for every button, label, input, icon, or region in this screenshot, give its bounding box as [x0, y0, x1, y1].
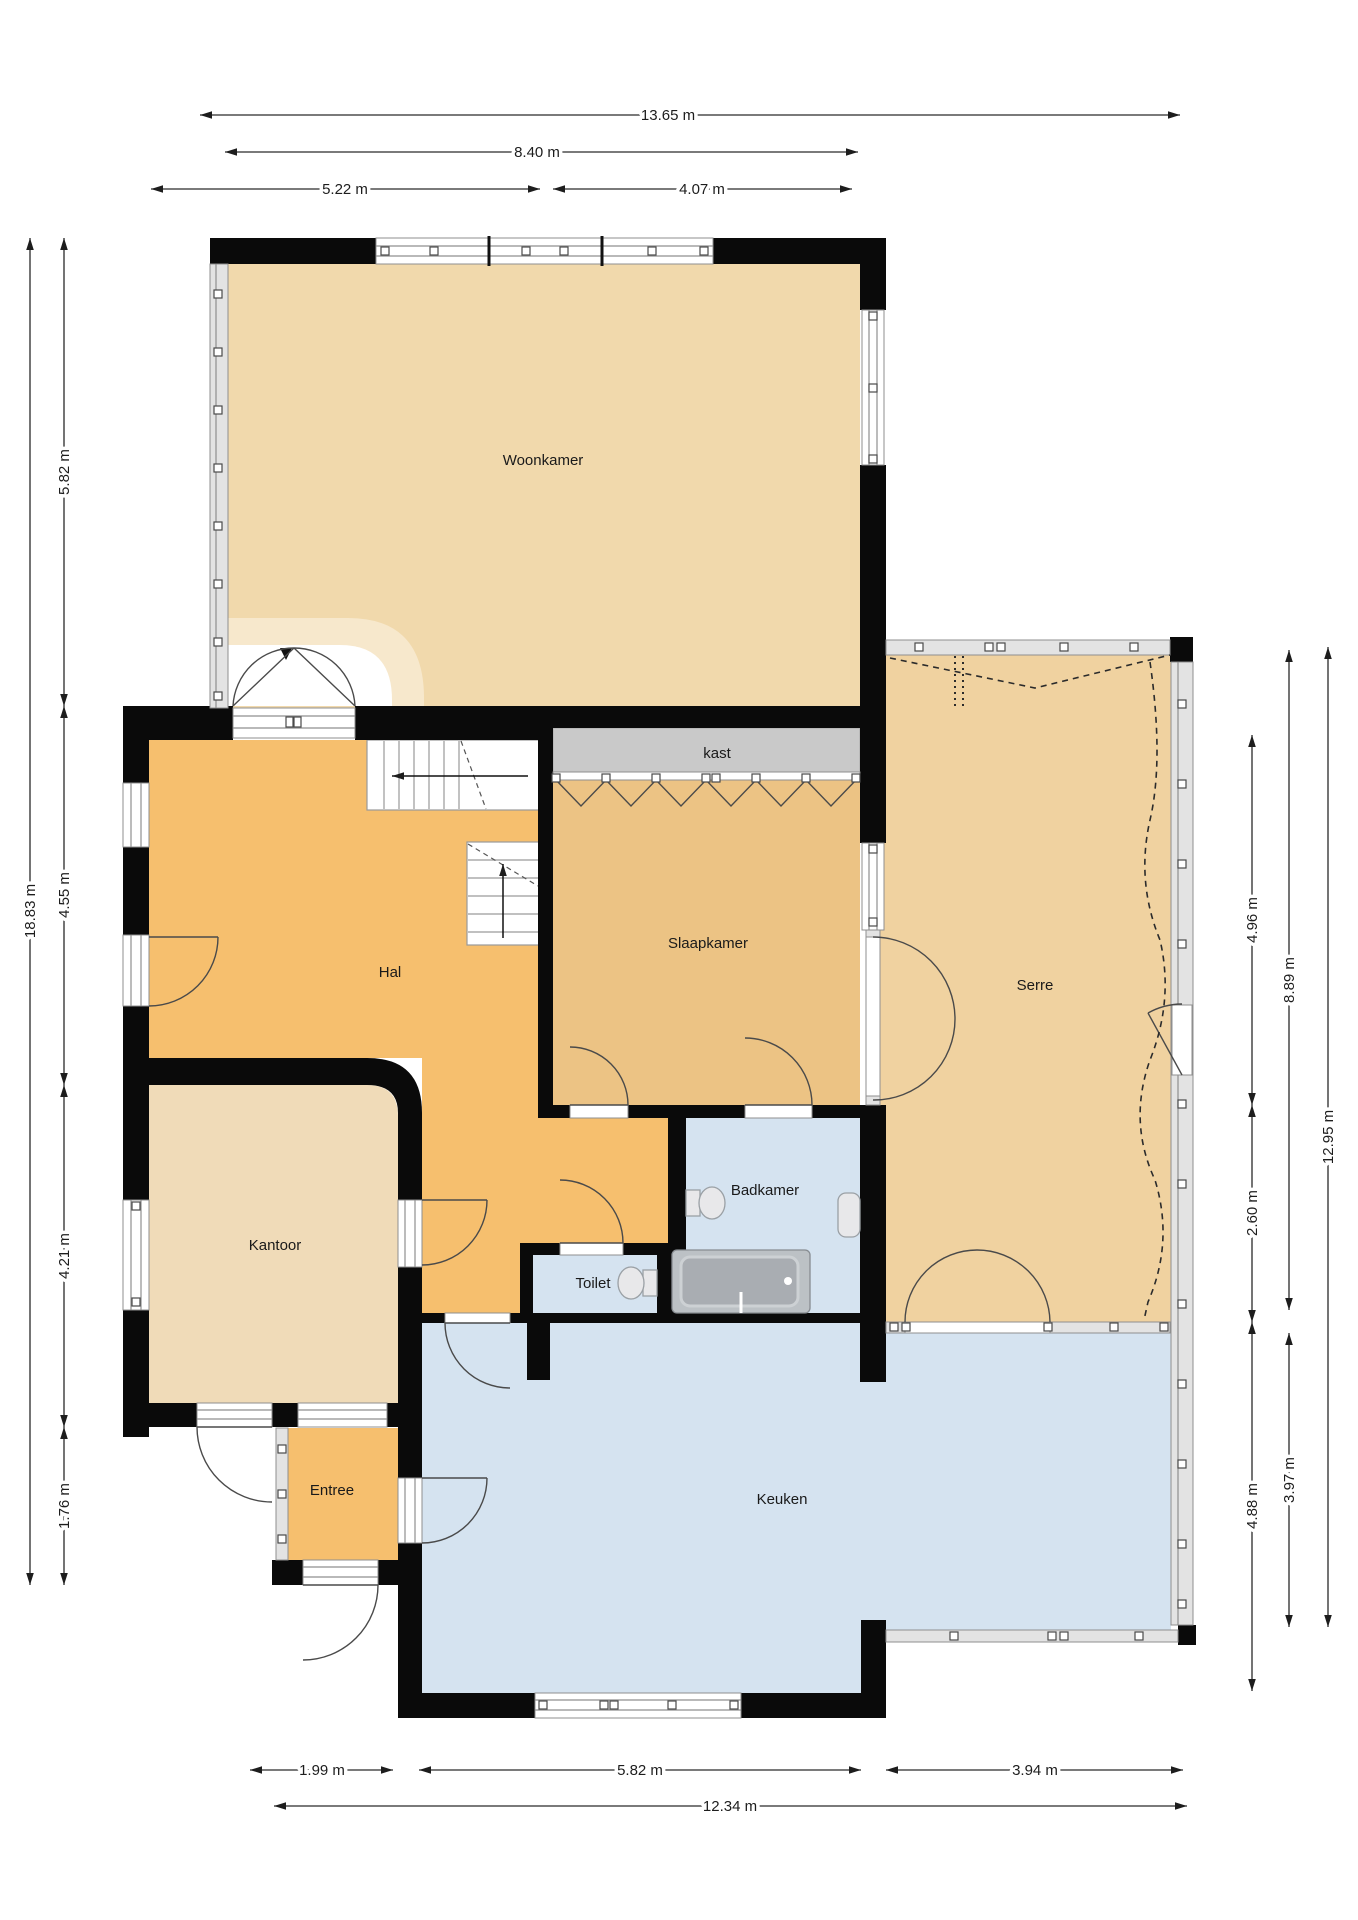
stairs-upper-flight: [367, 740, 540, 810]
dimension-label: 5.82 m: [56, 449, 73, 495]
door-opening-serre-west: [866, 937, 880, 1100]
window-kantoor-bottom: [298, 1403, 387, 1427]
room-hal-corridor-floor: [553, 1105, 672, 1243]
door-opening-serre-garden: [1172, 1005, 1192, 1075]
window-slaapkamer-right: [862, 843, 884, 930]
toilet-bowl-badkamer: [699, 1187, 725, 1219]
glazed-wall-serre-north: [886, 640, 1170, 655]
label-woonkamer: Woonkamer: [503, 452, 584, 469]
label-slaapkamer: Slaapkamer: [668, 935, 748, 952]
dimension-label: 2.60 m: [1244, 1190, 1261, 1236]
door-opening-serre-keuken: [905, 1322, 1050, 1333]
door-opening-kantoor-exterior: [197, 1403, 272, 1427]
bathtub-faucet-icon: [784, 1277, 792, 1285]
dimension-label: 4.88 m: [1244, 1483, 1261, 1529]
door-opening-hal-side: [123, 935, 149, 1006]
label-kast: kast: [703, 745, 731, 762]
dimension-label: 4.21 m: [56, 1233, 73, 1279]
door-opening-kantoor: [398, 1200, 422, 1267]
door-opening-entree-keuken: [398, 1478, 422, 1543]
label-entree: Entree: [310, 1482, 354, 1499]
entry-zone-white: [228, 645, 392, 706]
label-badkamer: Badkamer: [731, 1182, 799, 1199]
dimension-label: 13.65 m: [641, 107, 695, 124]
door-opening-front: [303, 1560, 378, 1585]
dimension-label: 1.99 m: [299, 1762, 345, 1779]
window-woonkamer-top: [376, 238, 713, 264]
label-toilet: Toilet: [575, 1275, 611, 1292]
dimension-label: 3.94 m: [1012, 1762, 1058, 1779]
glazed-wall-keuken-southeast: [886, 1630, 1178, 1642]
door-opening-slaapkamer-hal: [570, 1105, 628, 1118]
dimension-label: 4.96 m: [1244, 897, 1261, 943]
window-hal-left: [123, 783, 149, 847]
dimension-label: 12.95 m: [1320, 1110, 1337, 1164]
dimension-label: 3.97 m: [1281, 1457, 1298, 1503]
door-opening-toilet: [560, 1243, 623, 1255]
window-keuken-bottom: [535, 1693, 741, 1718]
label-kantoor: Kantoor: [249, 1237, 302, 1254]
room-keuken-east-floor: [886, 1333, 1171, 1630]
label-serre: Serre: [1017, 977, 1054, 994]
sink-badkamer: [838, 1193, 860, 1237]
dimension-label: 12.34 m: [703, 1798, 757, 1815]
glazed-wall-east: [1171, 662, 1193, 1625]
dimension-label: 8.40 m: [514, 144, 560, 161]
woonkamer-entry-zone: [228, 618, 424, 706]
dimension-label: 8.89 m: [1281, 957, 1298, 1003]
dimension-label: 4.07 m: [679, 181, 725, 198]
floorplan-canvas: Woonkamer Hal Slaapkamer Serre Kantoor T…: [0, 0, 1358, 1920]
dimension-label: 1.76 m: [56, 1483, 73, 1529]
dimension-label: 18.83 m: [22, 884, 39, 938]
toilet-bowl-toilet: [618, 1267, 644, 1299]
dimension-label: 4.55 m: [56, 872, 73, 918]
label-keuken: Keuken: [757, 1491, 808, 1508]
dimension-label: 5.22 m: [322, 181, 368, 198]
toilet-tank-toilet: [643, 1270, 657, 1296]
label-hal: Hal: [379, 964, 402, 981]
room-keuken-floor: [422, 1323, 886, 1693]
door-opening-slaapkamer-badkamer: [745, 1105, 812, 1118]
floor-plan: Woonkamer Hal Slaapkamer Serre Kantoor T…: [0, 0, 1358, 1920]
toilet-tank-badkamer: [686, 1190, 700, 1216]
door-opening-hal-keuken: [445, 1313, 510, 1323]
window-kantoor-left: [123, 1200, 149, 1310]
dimension-label: 5.82 m: [617, 1762, 663, 1779]
